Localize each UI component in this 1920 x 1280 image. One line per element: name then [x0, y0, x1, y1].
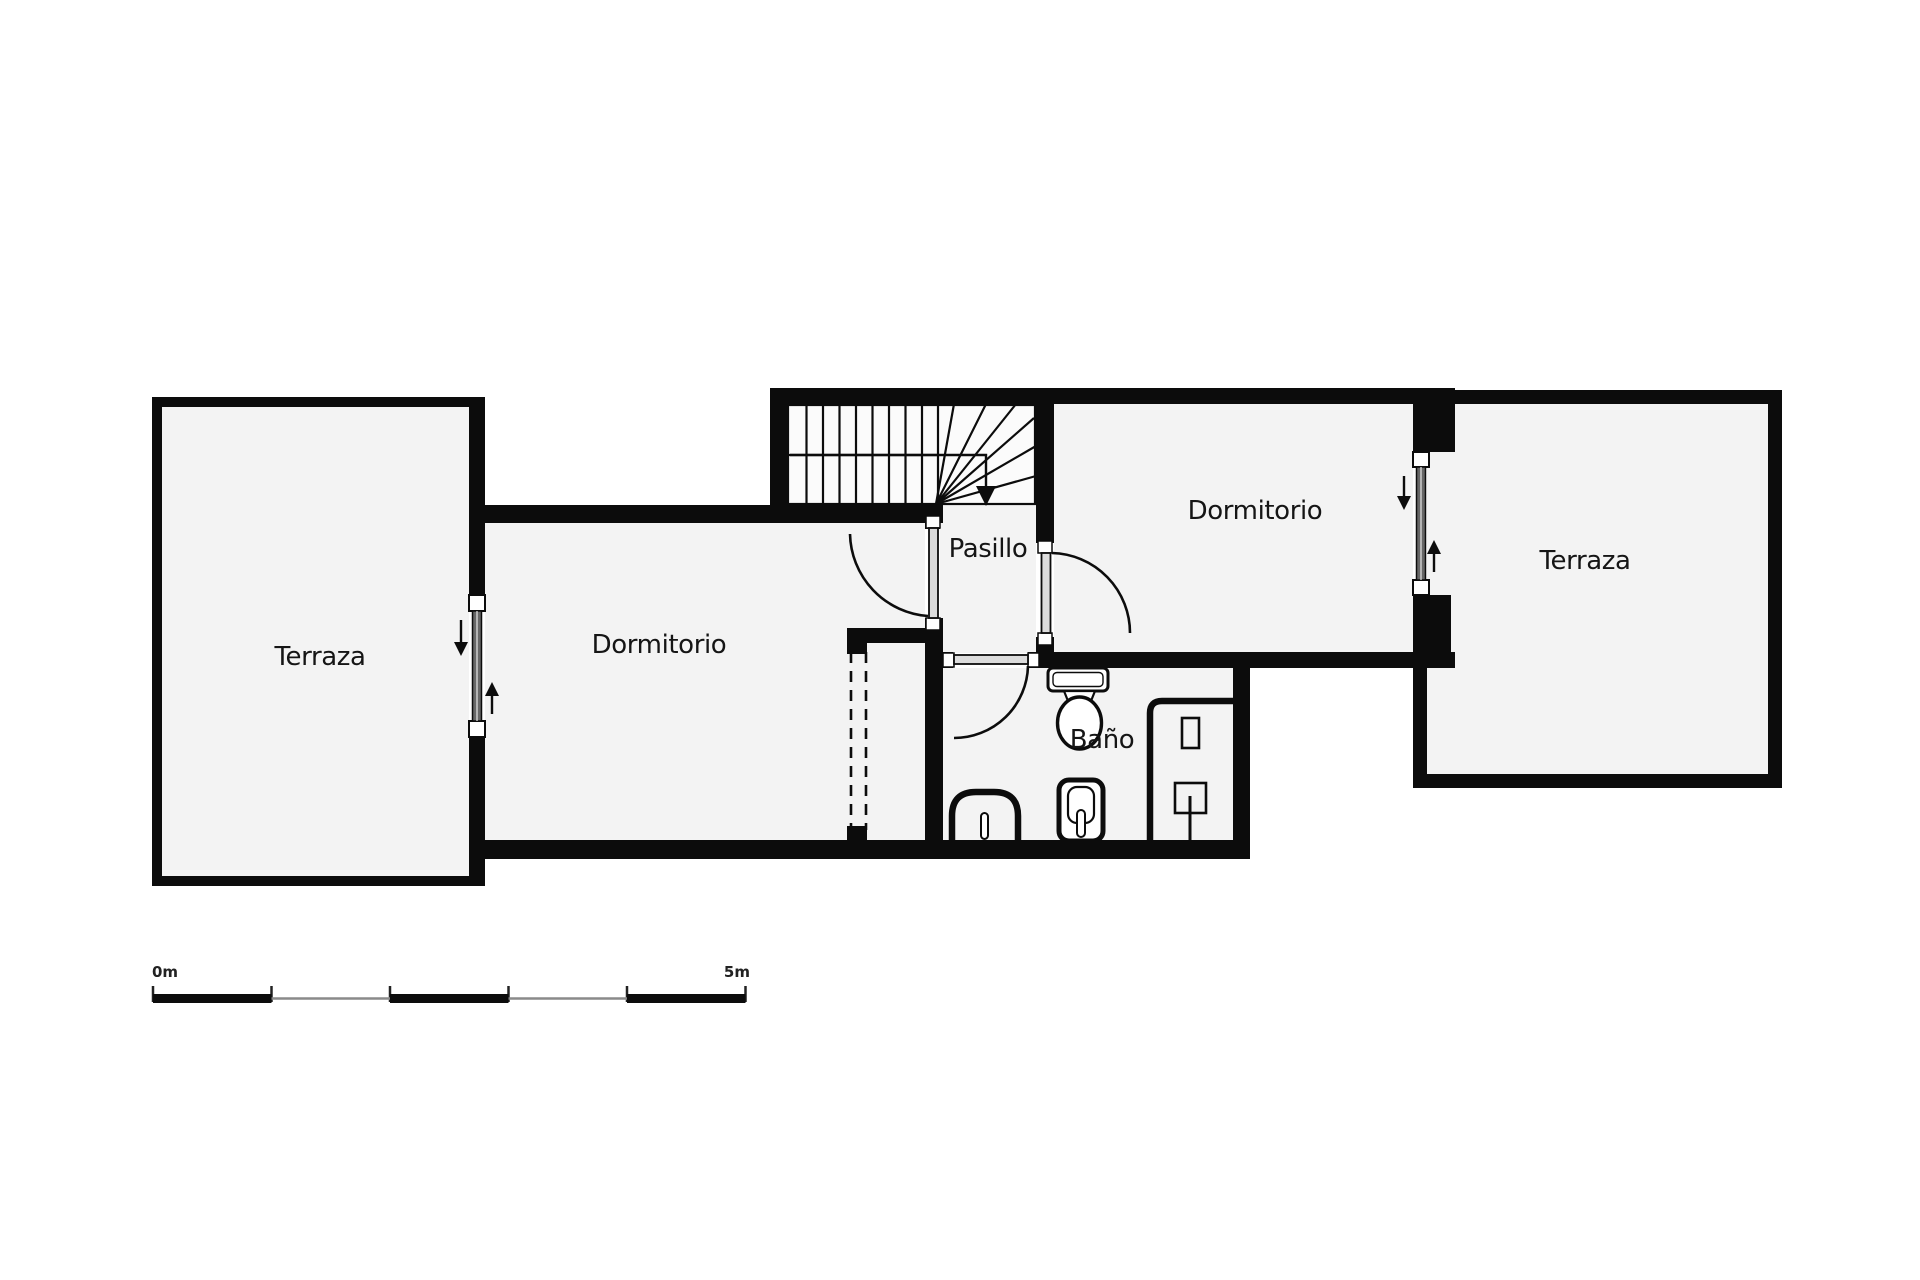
wall-terraza-left-left	[152, 397, 162, 886]
wall-pier-upper	[1413, 388, 1455, 452]
wall-terraza-left-top	[152, 397, 469, 407]
wall-dormitorio-left-top	[469, 505, 943, 523]
wall-terraza-right-bottom	[1413, 774, 1782, 788]
wall-top-main	[770, 388, 1455, 404]
room-label-dormitorio-right: Dormitorio	[1188, 496, 1323, 526]
wall-pasillo-right-upper	[1036, 388, 1054, 543]
terrace-right-window-icon	[1413, 452, 1429, 595]
scale-start-label: 0m	[152, 963, 178, 981]
scale-end-label: 5m	[712, 963, 750, 981]
wall-left-divider-lower	[469, 737, 485, 886]
terrace-left-window-icon	[469, 595, 485, 737]
floorplan-page: Terraza Dormitorio Pasillo Dormitorio Te…	[0, 0, 1920, 1280]
dormitorio-right-floor	[1054, 404, 1413, 652]
scale-segment-filled	[627, 994, 746, 1003]
scale-bar	[153, 986, 746, 1003]
room-label-bano: Baño	[1070, 725, 1135, 755]
bidet-icon	[1059, 780, 1103, 841]
wall-terraza-right-top	[1451, 390, 1782, 404]
wall-left-divider-upper	[469, 397, 485, 595]
room-label-dormitorio-left: Dormitorio	[592, 630, 727, 660]
wall-stair-left	[770, 388, 787, 523]
wall-terraza-right-right	[1768, 390, 1782, 788]
wall-bottom-band	[469, 840, 1250, 859]
wall-bath-right	[1233, 652, 1250, 859]
wall-terraza-left-bottom	[152, 876, 485, 886]
floorplan-drawing	[0, 0, 1920, 1280]
pasillo-floor	[940, 505, 1036, 653]
wall-terraza-right-left	[1413, 668, 1427, 778]
room-fills	[162, 404, 1768, 876]
room-label-terraza-left: Terraza	[274, 642, 365, 672]
scale-segment-filled	[153, 994, 272, 1003]
room-label-terraza-right: Terraza	[1539, 546, 1630, 576]
terraza-right-floor	[1427, 404, 1768, 774]
room-label-pasillo: Pasillo	[949, 534, 1028, 564]
scale-segment-filled	[390, 994, 509, 1003]
wall-closet-right	[925, 618, 943, 840]
